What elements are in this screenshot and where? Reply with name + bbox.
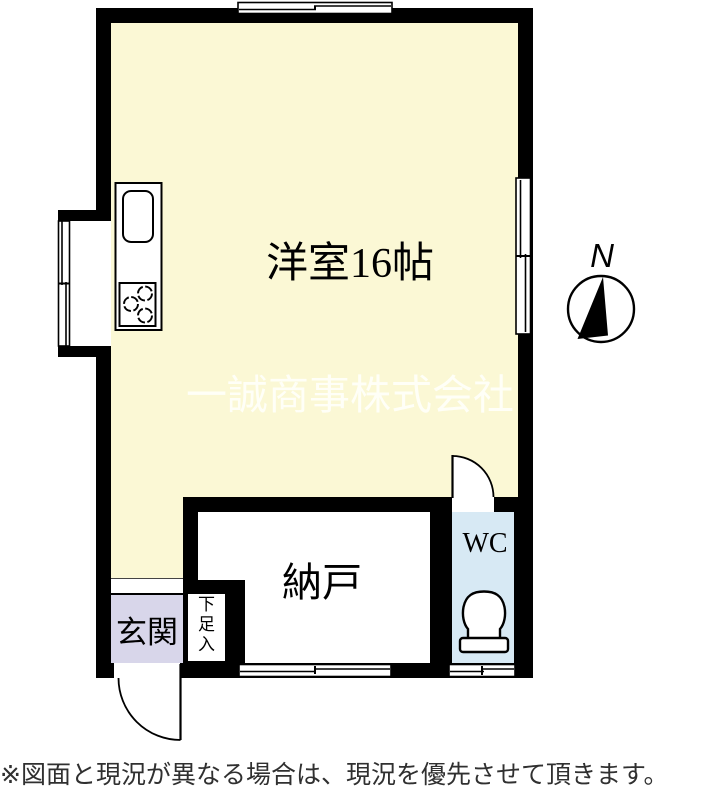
floor-plan: 洋室16帖 一誠商事株式会社 納戸 WC 玄関 下足入 N ※図面と現況が異なる… (0, 0, 702, 800)
wc-door (453, 455, 494, 498)
main-room-label: 洋室16帖 (229, 240, 471, 288)
toilet-icon (460, 592, 508, 653)
north-label: N (583, 238, 621, 274)
bay-window-glass (58, 221, 70, 346)
disclaimer: ※図面と現況が異なる場合は、現況を優先させて頂きます。 (0, 760, 702, 790)
sink-icon (123, 191, 153, 242)
window-right (516, 178, 531, 334)
shoe-cabinet-label: 下足入 (186, 595, 227, 655)
compass (568, 276, 634, 342)
watermark: 一誠商事株式会社 (160, 372, 540, 418)
entrance-label: 玄関 (111, 615, 183, 651)
kitchen-counter (116, 183, 162, 330)
window-storage (239, 665, 391, 677)
window-wc (449, 665, 515, 677)
storage-room-label: 納戸 (230, 561, 414, 605)
window-top (238, 3, 392, 14)
wc-label: WC (456, 528, 514, 560)
entrance-door (119, 664, 181, 740)
